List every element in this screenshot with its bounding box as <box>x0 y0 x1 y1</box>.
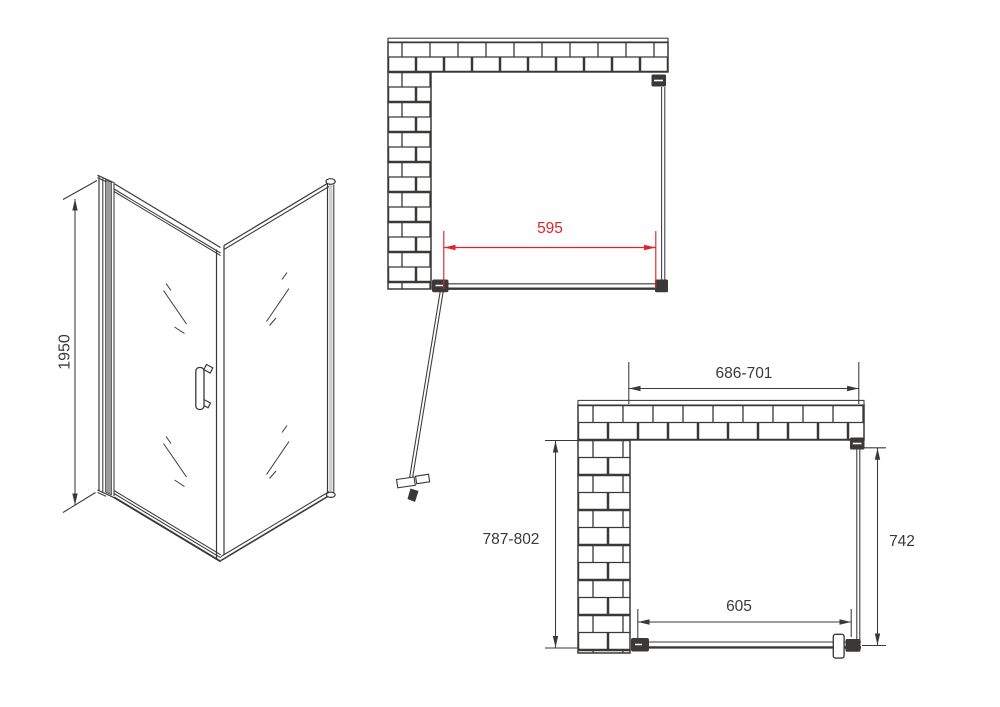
wall <box>388 38 668 289</box>
height-dimension-label: 1950 <box>57 334 74 370</box>
door-top-frame <box>114 184 221 256</box>
door-width-label: 595 <box>537 220 563 237</box>
overall-width-dimension: 686-701 <box>629 362 859 404</box>
side-panel-top-edge <box>224 183 329 250</box>
door-width-dimension: 605 <box>638 598 851 641</box>
door-closed-position <box>631 634 861 658</box>
iso-view: 1950 <box>57 175 336 561</box>
corner-fitting <box>655 280 668 293</box>
door-width-label: 605 <box>726 598 752 615</box>
door-bottom-frame <box>114 491 221 562</box>
side-panel <box>652 75 667 285</box>
side-panel <box>850 438 865 647</box>
side-wall-profile <box>326 179 335 498</box>
wall <box>578 400 864 653</box>
overall-width-label: 686-701 <box>716 365 773 382</box>
door-width-dimension: 595 <box>444 220 656 289</box>
left-depth-label: 787-802 <box>483 531 540 548</box>
door-open-swing <box>397 292 444 503</box>
glass-shine-marks <box>164 273 290 487</box>
plan-view-dimensioned: 686-701 787-802 742 605 <box>483 362 915 658</box>
corner-post <box>217 246 225 559</box>
shower-enclosure-technical-drawing: 1950 <box>0 0 1000 707</box>
height-dimension: 1950 <box>57 181 98 513</box>
door-knob <box>833 634 844 658</box>
door-handle <box>196 365 213 410</box>
left-depth-dimension: 787-802 <box>483 441 579 649</box>
door-edge-tip <box>408 489 419 503</box>
door-closed-position <box>432 280 668 293</box>
door-wall-profile <box>98 175 115 498</box>
panel-depth-dimension: 742 <box>862 448 915 646</box>
side-panel-bottom-edge <box>221 491 331 561</box>
drawing-svg: 1950 <box>0 0 1000 707</box>
panel-depth-label: 742 <box>889 533 915 550</box>
corner-fitting <box>846 639 861 652</box>
